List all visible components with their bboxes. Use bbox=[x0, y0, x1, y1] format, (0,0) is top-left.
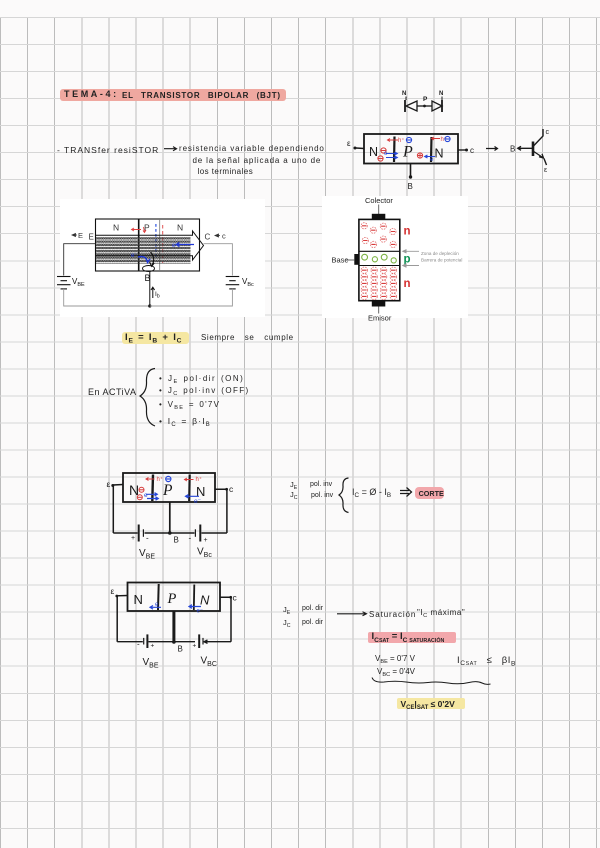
svg-text:N: N bbox=[177, 223, 183, 233]
svg-text:N: N bbox=[369, 145, 378, 159]
svg-text:n: n bbox=[404, 226, 411, 238]
svg-text:VBE: VBE bbox=[72, 277, 85, 288]
svg-text:N: N bbox=[435, 147, 444, 161]
svg-text:B: B bbox=[408, 182, 413, 191]
svg-text:e: e bbox=[430, 157, 434, 163]
svg-text:VBc: VBc bbox=[197, 547, 212, 560]
svg-text:B: B bbox=[510, 145, 515, 154]
svg-text:B: B bbox=[174, 536, 179, 545]
svg-text:Emisor: Emisor bbox=[368, 314, 392, 323]
svg-text:VBC: VBC bbox=[201, 656, 217, 669]
svg-text:ε: ε bbox=[111, 586, 115, 596]
svg-text:c: c bbox=[470, 146, 474, 155]
svg-text:P: P bbox=[423, 96, 428, 103]
svg-text:e: e bbox=[144, 492, 148, 499]
svg-text:VBc: VBc bbox=[242, 277, 254, 288]
svg-text:+: + bbox=[151, 643, 155, 650]
svg-text:c: c bbox=[233, 593, 238, 603]
svg-text:N: N bbox=[200, 593, 210, 608]
svg-text:h⁺: h⁺ bbox=[157, 476, 164, 483]
svg-text:Ib: Ib bbox=[155, 291, 160, 300]
svg-text:e⁻: e⁻ bbox=[197, 609, 204, 615]
svg-text:e⁻: e⁻ bbox=[131, 253, 138, 259]
svg-text:N: N bbox=[402, 91, 406, 97]
svg-text:Colector: Colector bbox=[365, 196, 393, 205]
svg-text:+: + bbox=[193, 643, 197, 650]
svg-text:h⁺: h⁺ bbox=[398, 137, 405, 144]
svg-text:B: B bbox=[178, 645, 183, 654]
svg-text:Zona de depleción: Zona de depleción bbox=[421, 251, 459, 256]
svg-text:Barrera de potencial: Barrera de potencial bbox=[421, 258, 462, 263]
svg-text:c: c bbox=[546, 129, 550, 136]
svg-text:n: n bbox=[404, 278, 411, 290]
svg-text:N: N bbox=[439, 91, 443, 97]
svg-text:E: E bbox=[78, 231, 83, 240]
svg-text:p: p bbox=[404, 254, 411, 266]
svg-text:-: - bbox=[137, 640, 140, 649]
svg-text:E: E bbox=[89, 233, 94, 242]
svg-text:c: c bbox=[222, 232, 226, 241]
svg-text:VBE: VBE bbox=[139, 548, 155, 561]
svg-text:e⁻: e⁻ bbox=[194, 498, 202, 505]
svg-text:c: c bbox=[229, 484, 234, 494]
svg-text:P: P bbox=[402, 144, 413, 161]
svg-text:P: P bbox=[162, 482, 173, 499]
svg-text:ε: ε bbox=[544, 167, 547, 174]
svg-text:C: C bbox=[205, 233, 211, 242]
svg-text:+: + bbox=[204, 537, 208, 544]
svg-text:+: + bbox=[131, 535, 135, 542]
svg-text:-: - bbox=[189, 534, 192, 543]
svg-text:VBE: VBE bbox=[143, 657, 159, 670]
svg-text:ε: ε bbox=[107, 479, 111, 489]
svg-text:h⁺: h⁺ bbox=[196, 476, 203, 483]
svg-text:ε: ε bbox=[347, 139, 351, 148]
svg-text:-: - bbox=[146, 534, 149, 543]
svg-text:P: P bbox=[167, 591, 177, 607]
svg-text:N: N bbox=[134, 592, 143, 607]
svg-text:e⁻: e⁻ bbox=[172, 243, 179, 249]
svg-text:N: N bbox=[113, 223, 119, 233]
